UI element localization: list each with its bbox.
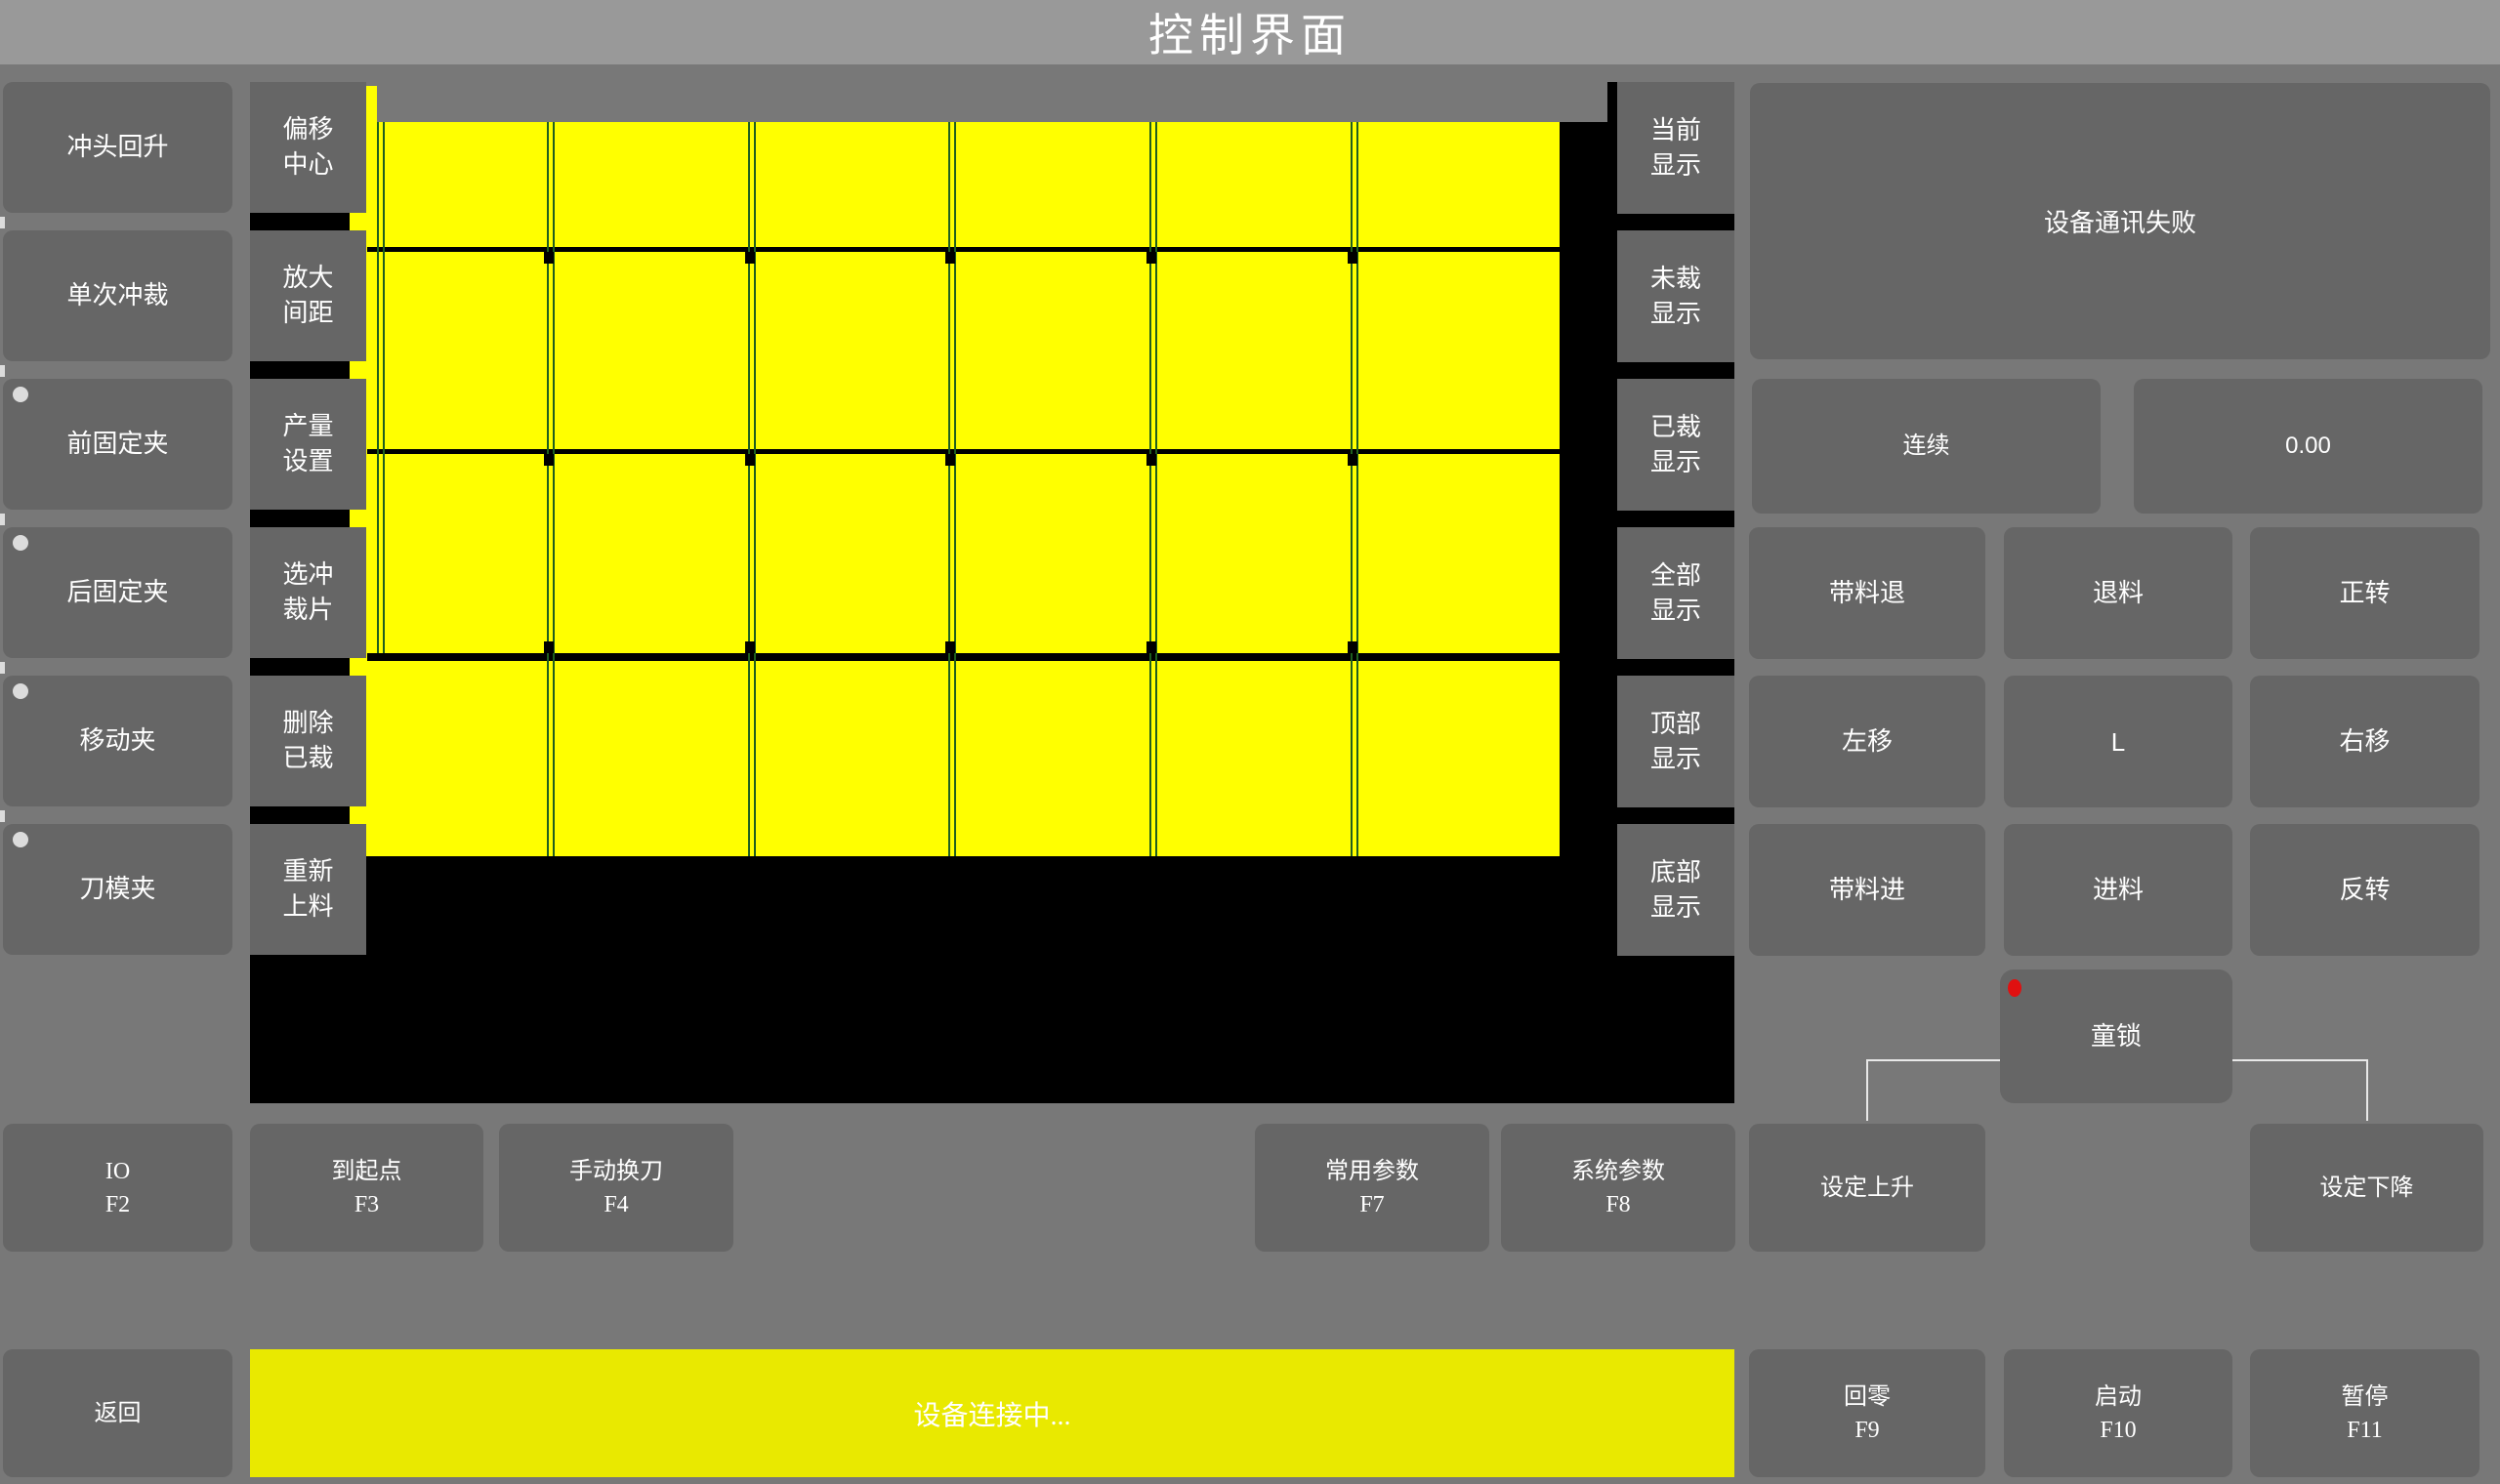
back-button[interactable]: 返回 <box>3 1349 232 1477</box>
l-button[interactable]: L <box>2004 676 2232 807</box>
button-label: 已裁 <box>282 741 333 776</box>
grid-notch <box>1348 454 1357 466</box>
grid-notch <box>745 454 755 466</box>
fn-key-label: F4 <box>604 1188 628 1221</box>
button-label: 后固定夹 <box>66 575 168 610</box>
button-label: 显示 <box>1650 297 1701 332</box>
indicator-dot <box>13 535 28 551</box>
button-label: 裁片 <box>282 593 333 628</box>
canvas-top-marker <box>1607 82 1617 122</box>
grid-column-line <box>754 122 756 856</box>
fn-key-label: F11 <box>2347 1414 2382 1447</box>
button-label: 移动夹 <box>79 723 155 759</box>
punch-raise-button[interactable]: 冲头回升 <box>3 82 232 213</box>
delete-cut-button[interactable]: 删除 已裁 <box>250 676 366 806</box>
connector-line <box>2232 1059 2368 1061</box>
grid-notch <box>1348 252 1357 264</box>
button-label: 底部 <box>1650 855 1701 890</box>
button-label: 返回 <box>95 1396 142 1431</box>
grid-column-line <box>1351 122 1353 856</box>
reload-material-button[interactable]: 重新 上料 <box>250 824 366 955</box>
connector-line <box>1866 1059 1868 1121</box>
edge-tick <box>0 662 5 674</box>
button-label: 带料进 <box>1829 873 1905 908</box>
fn-key-label: F3 <box>354 1188 379 1221</box>
button-label: 上料 <box>282 889 333 925</box>
button-label: IO <box>105 1155 130 1188</box>
button-label: 系统参数 <box>1571 1155 1665 1188</box>
select-piece-button[interactable]: 选冲 裁片 <box>250 527 366 658</box>
comm-status-message: 设备通讯失败 <box>1750 83 2490 359</box>
button-label: 右移 <box>2339 724 2390 760</box>
button-label: 手动换刀 <box>569 1155 663 1188</box>
button-label: 正转 <box>2339 576 2390 611</box>
grid-column-line <box>948 122 950 856</box>
edge-tick <box>0 365 5 377</box>
bottom-display-button[interactable]: 底部 显示 <box>1617 824 1734 956</box>
button-label: 显示 <box>1650 742 1701 777</box>
fn-key-label: F2 <box>105 1188 130 1221</box>
button-label: 暂停 <box>2342 1381 2389 1414</box>
fn-key-label: F9 <box>1854 1414 1879 1447</box>
button-label: 重新 <box>282 854 333 889</box>
button-label: 单次冲裁 <box>66 278 168 313</box>
reverse-rotate-button[interactable]: 反转 <box>2250 824 2479 956</box>
button-label: 左移 <box>1842 724 1893 760</box>
button-label: 前固定夹 <box>66 427 168 462</box>
status-bar: 设备连接中... <box>250 1349 1734 1477</box>
uncut-display-button[interactable]: 未裁 显示 <box>1617 230 1734 362</box>
grid-notch <box>945 252 955 264</box>
edge-tick <box>0 810 5 822</box>
button-label: 已裁 <box>1650 410 1701 445</box>
button-label: 显示 <box>1650 890 1701 926</box>
set-rise-button[interactable]: 设定上升 <box>1749 1124 1985 1252</box>
button-label: 冲头回升 <box>66 130 168 165</box>
button-label: 设定上升 <box>1820 1172 1914 1205</box>
child-lock-button[interactable]: 童锁 <box>2000 969 2232 1103</box>
grid-notch <box>1348 641 1357 653</box>
grid-notch <box>544 252 554 264</box>
yield-settings-button[interactable]: 产量 设置 <box>250 379 366 510</box>
grid-column-line <box>377 122 379 653</box>
button-label: 当前 <box>1650 113 1701 148</box>
io-button[interactable]: IO F2 <box>3 1124 232 1252</box>
grid-column-line <box>383 122 385 653</box>
front-clamp-button[interactable]: 前固定夹 <box>3 379 232 510</box>
home-button[interactable]: 回零 F9 <box>1749 1349 1985 1477</box>
button-label: 退料 <box>2093 576 2144 611</box>
page-title: 控制界面 <box>1148 0 1352 64</box>
start-button[interactable]: 启动 F10 <box>2004 1349 2232 1477</box>
cut-display-button[interactable]: 已裁 显示 <box>1617 379 1734 511</box>
title-bar: 控制界面 <box>0 0 2500 64</box>
grid-notch <box>544 454 554 466</box>
message-text: 设备通讯失败 <box>2044 203 2196 239</box>
button-label: 设定下降 <box>2320 1172 2414 1205</box>
unload-button[interactable]: 退料 <box>2004 527 2232 659</box>
button-label: 童锁 <box>2091 1019 2142 1054</box>
button-label: 间距 <box>282 296 333 331</box>
grid-column-line <box>748 122 750 856</box>
die-clamp-button[interactable]: 刀模夹 <box>3 824 232 955</box>
grid-column-line <box>954 122 956 856</box>
sheet-grid[interactable] <box>367 122 1560 856</box>
button-label: 常用参数 <box>1325 1155 1419 1188</box>
tape-forward-button[interactable]: 带料进 <box>1749 824 1985 956</box>
status-message: 设备连接中... <box>913 1394 1070 1433</box>
button-label: 中心 <box>282 147 333 183</box>
grid-column-line <box>553 122 555 856</box>
all-display-button[interactable]: 全部 显示 <box>1617 527 1734 659</box>
grid-notch <box>544 641 554 653</box>
edge-tick <box>0 217 5 228</box>
control-screen: 控制界面 冲头回升 单次冲裁 前固定夹 后固定夹 移动夹 刀模夹 偏移 中 <box>0 0 2500 1484</box>
connector-line <box>1866 1059 2000 1061</box>
grid-notch <box>945 641 955 653</box>
red-indicator-dot <box>2008 979 2021 997</box>
move-right-button[interactable]: 右移 <box>2250 676 2479 807</box>
button-label: 偏移 <box>282 112 333 147</box>
system-params-button[interactable]: 系统参数 F8 <box>1501 1124 1735 1252</box>
button-label: 带料退 <box>1829 576 1905 611</box>
fn-key-label: F8 <box>1605 1188 1630 1221</box>
to-origin-button[interactable]: 到起点 F3 <box>250 1124 483 1252</box>
single-punch-button[interactable]: 单次冲裁 <box>3 230 232 361</box>
grid-notch <box>945 454 955 466</box>
button-label: 显示 <box>1650 594 1701 629</box>
button-label: 全部 <box>1650 558 1701 594</box>
button-label: 连续 <box>1903 429 1950 464</box>
set-fall-button[interactable]: 设定下降 <box>2250 1124 2483 1252</box>
value-text: 0.00 <box>2285 429 2331 464</box>
move-left-button[interactable]: 左移 <box>1749 676 1985 807</box>
rear-clamp-button[interactable]: 后固定夹 <box>3 527 232 658</box>
indicator-dot <box>13 387 28 402</box>
fn-key-label: F10 <box>2100 1414 2136 1447</box>
forward-rotate-button[interactable]: 正转 <box>2250 527 2479 659</box>
button-label: 放大 <box>282 261 333 296</box>
common-params-button[interactable]: 常用参数 F7 <box>1255 1124 1489 1252</box>
tape-back-button[interactable]: 带料退 <box>1749 527 1985 659</box>
button-label: 反转 <box>2339 873 2390 908</box>
connector-line <box>2366 1059 2368 1121</box>
button-label: 设置 <box>282 444 333 479</box>
button-label: L <box>2111 724 2125 760</box>
indicator-dot <box>13 683 28 699</box>
button-label: 进料 <box>2093 873 2144 908</box>
fn-key-label: F7 <box>1359 1188 1384 1221</box>
offset-center-button[interactable]: 偏移 中心 <box>250 82 366 213</box>
enlarge-spacing-button[interactable]: 放大 间距 <box>250 230 366 361</box>
grid-notch <box>1146 252 1156 264</box>
button-label: 显示 <box>1650 445 1701 480</box>
top-display-button[interactable]: 顶部 显示 <box>1617 676 1734 807</box>
grid-column-line <box>1356 122 1358 856</box>
grid-notch <box>745 252 755 264</box>
feed-button[interactable]: 进料 <box>2004 824 2232 956</box>
button-label: 显示 <box>1650 148 1701 184</box>
button-label: 刀模夹 <box>79 872 155 907</box>
button-label: 到起点 <box>332 1155 402 1188</box>
button-label: 未裁 <box>1650 262 1701 297</box>
pause-button[interactable]: 暂停 F11 <box>2250 1349 2479 1477</box>
button-label: 选冲 <box>282 557 333 593</box>
moving-clamp-button[interactable]: 移动夹 <box>3 676 232 806</box>
button-label: 产量 <box>282 409 333 444</box>
indicator-dot <box>13 832 28 847</box>
edge-tick <box>0 514 5 525</box>
grid-notch <box>1146 454 1156 466</box>
button-label: 删除 <box>282 706 333 741</box>
current-display-button[interactable]: 当前 显示 <box>1617 82 1734 214</box>
continuous-mode-button[interactable]: 连续 <box>1752 379 2101 514</box>
button-label: 顶部 <box>1650 707 1701 742</box>
button-label: 启动 <box>2095 1381 2142 1414</box>
grid-column-line <box>547 122 549 856</box>
grid-notch <box>1146 641 1156 653</box>
manual-tool-change-button[interactable]: 手动换刀 F4 <box>499 1124 733 1252</box>
value-display[interactable]: 0.00 <box>2134 379 2482 514</box>
grid-column-line <box>1149 122 1151 856</box>
grid-notch <box>745 641 755 653</box>
grid-column-line <box>1155 122 1157 856</box>
button-label: 回零 <box>1844 1381 1891 1414</box>
